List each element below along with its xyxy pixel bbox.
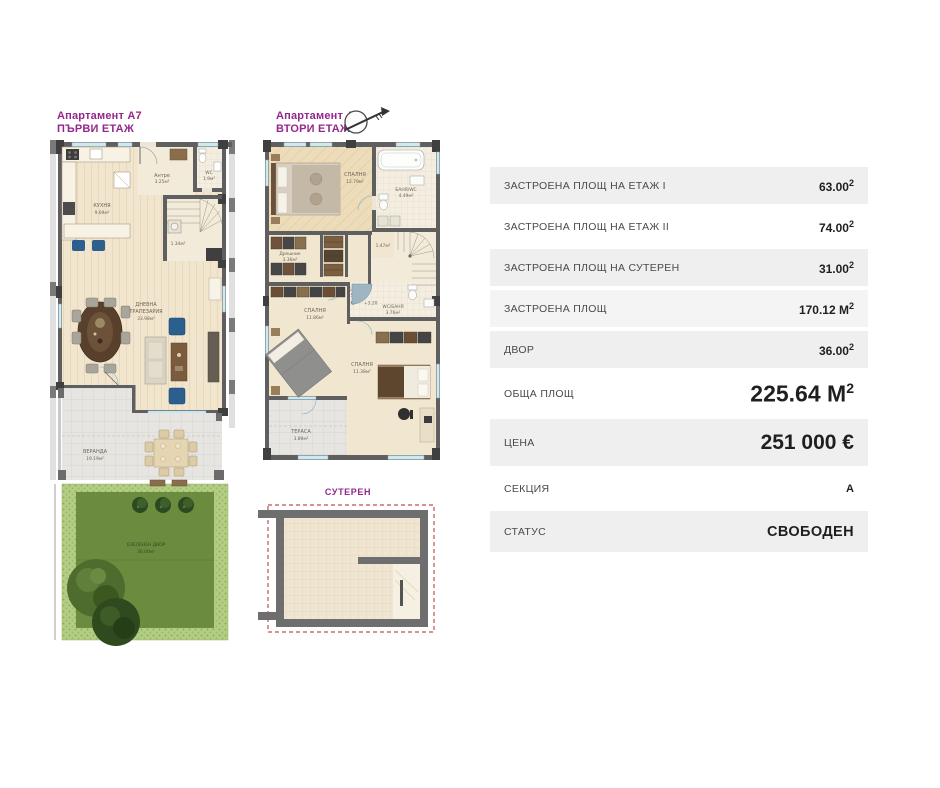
cabinet <box>209 278 221 300</box>
corridor-level: +3.20 <box>364 301 378 307</box>
bath-area: 4.49м² <box>399 193 414 199</box>
terrace-floor <box>269 400 347 455</box>
washbasin3 <box>424 299 434 307</box>
washbasin2 <box>410 176 424 185</box>
desk <box>420 408 434 442</box>
wc2-label: WC/БАНЯ <box>382 304 403 310</box>
spec-label: ЗАСТРОЕНА ПЛОЩ НА ЕТАЖ I <box>504 180 666 192</box>
spec-value: 251 000 € <box>761 431 854 455</box>
spec-value: 225.64 М2 <box>750 380 854 408</box>
armchair <box>169 318 185 335</box>
basement-plan <box>255 500 445 640</box>
spec-value: 74.002 <box>819 219 854 235</box>
wc-label: WC <box>205 170 212 176</box>
spec-label: ЗАСТРОЕНА ПЛОЩ <box>504 303 607 315</box>
bath-label: БАНЯ/WC <box>395 187 416 193</box>
spec-table: ЗАСТРОЕНА ПЛОЩ НА ЕТАЖ I 63.002 ЗАСТРОЕН… <box>490 167 868 556</box>
spec-label: ЗАСТРОЕНА ПЛОЩ НА ЕТАЖ II <box>504 221 669 233</box>
first-floor-title: Апартамент А7 ПЪРВИ ЕТАЖ <box>57 110 142 136</box>
veranda-area: 19.19м² <box>86 456 104 462</box>
spec-row-total-area: ОБЩА ПЛОЩ 225.64 М2 <box>490 372 868 415</box>
first-floor-title-line2: ПЪРВИ ЕТАЖ <box>57 123 142 136</box>
spec-value: СВОБОДЕН <box>767 524 854 540</box>
spec-value: 36.002 <box>819 342 854 358</box>
stair-area-label: 1.34м² <box>171 241 186 247</box>
nightstand <box>271 217 280 224</box>
planter <box>150 480 165 486</box>
oven <box>63 202 75 215</box>
bedroom1-area: 12.79м² <box>346 179 364 185</box>
wardrobe-band <box>324 236 343 276</box>
coffee-table <box>171 343 187 381</box>
spec-value: А <box>846 483 854 495</box>
basement-title: СУТЕРЕН <box>258 487 438 497</box>
garden-area: 36.00м² <box>137 549 155 555</box>
spec-row-floor1: ЗАСТРОЕНА ПЛОЩ НА ЕТАЖ I 63.002 <box>490 167 868 204</box>
terrace-area: 3.89м² <box>294 436 309 442</box>
closet-label: Дрешник <box>279 251 301 257</box>
second-floor-plan: СПАЛНЯ 12.79м² БАНЯ/WC 4.49м² Дрешник 3.… <box>258 136 443 466</box>
spec-row-section: СЕКЦИЯ А <box>490 470 868 507</box>
bedroom2-label: СПАЛНЯ <box>304 308 326 314</box>
spec-row-floor2: ЗАСТРОЕНА ПЛОЩ НА ЕТАЖ II 74.002 <box>490 208 868 245</box>
spec-label: ЦЕНА <box>504 437 535 449</box>
bedroom1-label: СПАЛНЯ <box>344 172 366 178</box>
spec-row-yard: ДВОР 36.002 <box>490 331 868 368</box>
entry-door-opening <box>140 142 156 147</box>
nightstand <box>271 386 280 395</box>
garden: ОЗЕЛЕНЕН ДВОР 36.00м² <box>62 480 228 646</box>
spec-value: 31.002 <box>819 260 854 276</box>
apartment-listing-page: Апартамент А7 ПЪРВИ ЕТАЖ Апартамент А7 В… <box>0 0 940 788</box>
niche-area-label: 1.47м² <box>376 243 391 249</box>
terrace-label: ТЕРАСА <box>290 429 311 435</box>
first-floor-title-line1: Апартамент А7 <box>57 110 142 123</box>
wc-area: 1.9м² <box>203 176 215 182</box>
veranda-label: ВЕРАНДА <box>83 449 108 455</box>
bedroom3-label: СПАЛНЯ <box>351 362 373 368</box>
stair-landing <box>206 248 222 261</box>
kitchen-area: 9.69м² <box>95 210 110 216</box>
bar-stool <box>72 240 85 251</box>
toilet2 <box>380 200 388 210</box>
wardrobe-band-2 <box>271 287 345 297</box>
spec-label: СЕКЦИЯ <box>504 483 549 495</box>
stove <box>66 149 79 160</box>
nightstand <box>271 328 280 336</box>
bedroom3-area: 11.38м² <box>353 369 371 375</box>
spec-row-status: СТАТУС СВОБОДЕН <box>490 511 868 552</box>
spec-label: ДВОР <box>504 344 534 356</box>
outdoor-table <box>154 439 188 467</box>
doormat <box>170 149 187 160</box>
north-arrow-icon <box>340 104 395 138</box>
planter <box>172 480 187 486</box>
living-label2: ТРАПЕЗАРИЯ <box>128 309 162 315</box>
closet-area: 3.36м² <box>283 257 298 263</box>
toilet3 <box>409 290 417 300</box>
entry-label: Антре <box>154 173 170 179</box>
armchair <box>169 388 185 404</box>
tv-unit <box>208 332 219 382</box>
spec-label: ОБЩА ПЛОЩ <box>504 388 574 400</box>
bed-headboard <box>271 163 276 215</box>
bedroom2-area: 11.86м² <box>306 315 324 321</box>
living-area: 33.98м² <box>137 316 155 322</box>
spec-value: 170.12 М2 <box>799 301 854 317</box>
spec-row-price: ЦЕНА 251 000 € <box>490 419 868 466</box>
desk-chair <box>398 408 410 420</box>
spec-value: 63.002 <box>819 178 854 194</box>
living-label1: ДНЕВНА <box>135 302 157 308</box>
bushes <box>132 497 194 513</box>
garden-label: ОЗЕЛЕНЕН ДВОР <box>127 542 166 548</box>
first-floor-plan: КУХНЯ 9.69м² Антре 3.25м² WC 1.9м² <box>50 136 240 666</box>
spec-row-basement: ЗАСТРОЕНА ПЛОЩ НА СУТЕРЕН 31.002 <box>490 249 868 286</box>
spec-label: ЗАСТРОЕНА ПЛОЩ НА СУТЕРЕН <box>504 262 680 274</box>
toilet <box>199 154 206 163</box>
bar-stool <box>92 240 105 251</box>
entry-area: 3.25м² <box>155 179 170 185</box>
sink <box>90 149 102 159</box>
kitchen-label: КУХНЯ <box>93 203 110 209</box>
spec-label: СТАТУС <box>504 526 546 538</box>
spec-row-built-area: ЗАСТРОЕНА ПЛОЩ 170.12 М2 <box>490 290 868 327</box>
nightstand <box>271 154 280 161</box>
washbasin <box>214 162 221 171</box>
wc2-area: 3.76м² <box>386 310 401 316</box>
basement-stair-nook <box>393 564 420 619</box>
